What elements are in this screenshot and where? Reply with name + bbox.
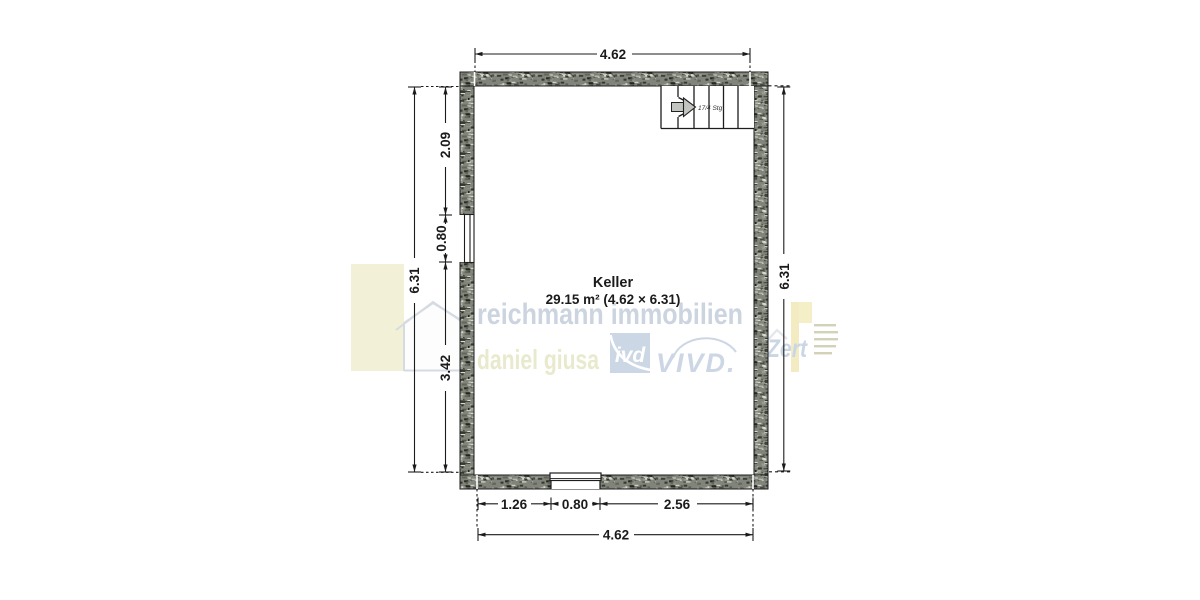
svg-text:ivd: ivd	[615, 344, 647, 367]
svg-text:Keller: Keller	[593, 275, 634, 291]
svg-text:0.80: 0.80	[562, 497, 588, 512]
svg-text:6.31: 6.31	[407, 267, 422, 294]
svg-text:4.62: 4.62	[600, 47, 626, 62]
svg-text:29.15 m² (4.62 × 6.31): 29.15 m² (4.62 × 6.31)	[546, 292, 681, 307]
svg-text:6.31: 6.31	[777, 263, 792, 290]
svg-text:2.09: 2.09	[438, 132, 453, 158]
svg-text:VIVD.: VIVD.	[656, 348, 737, 378]
svg-text:daniel giusa: daniel giusa	[477, 344, 599, 375]
svg-text:2.56: 2.56	[664, 497, 691, 512]
svg-text:Zert: Zert	[766, 335, 808, 363]
svg-text:4.62: 4.62	[603, 528, 629, 543]
svg-text:3.42: 3.42	[438, 355, 453, 381]
svg-text:0.80: 0.80	[434, 225, 449, 251]
svg-text:1.26: 1.26	[501, 497, 528, 512]
svg-text:17/4 Stg: 17/4 Stg	[698, 105, 723, 112]
